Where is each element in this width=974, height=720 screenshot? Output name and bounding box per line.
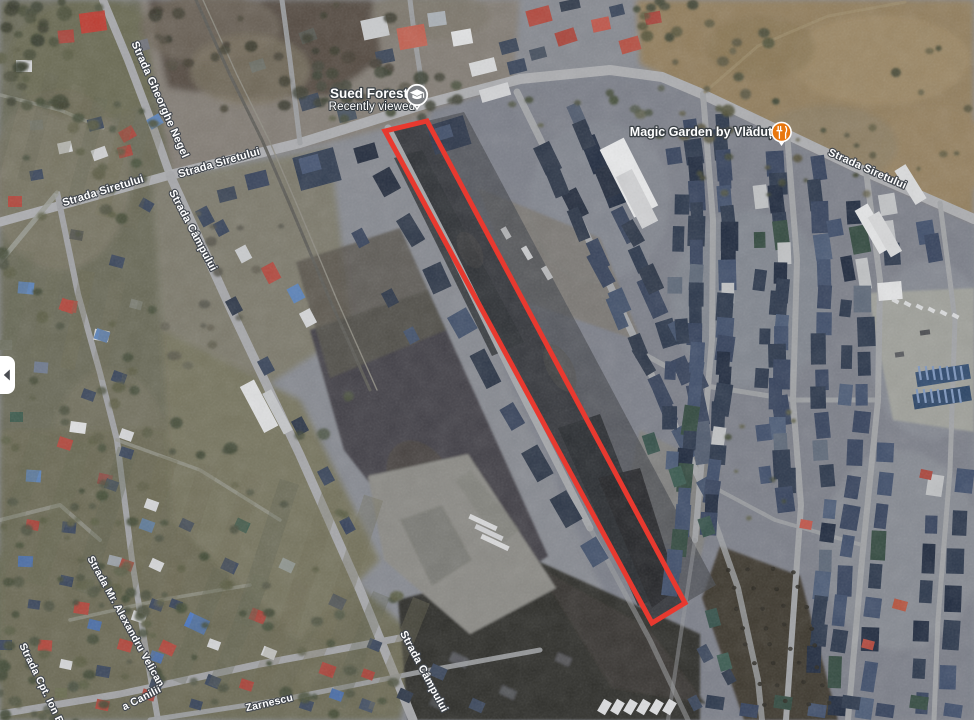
svg-text:Recently viewed: Recently viewed (329, 101, 416, 113)
svg-text:Sued Forest: Sued Forest (330, 86, 409, 101)
svg-text:Magic Garden by Vlăduț: Magic Garden by Vlăduț (630, 125, 773, 139)
